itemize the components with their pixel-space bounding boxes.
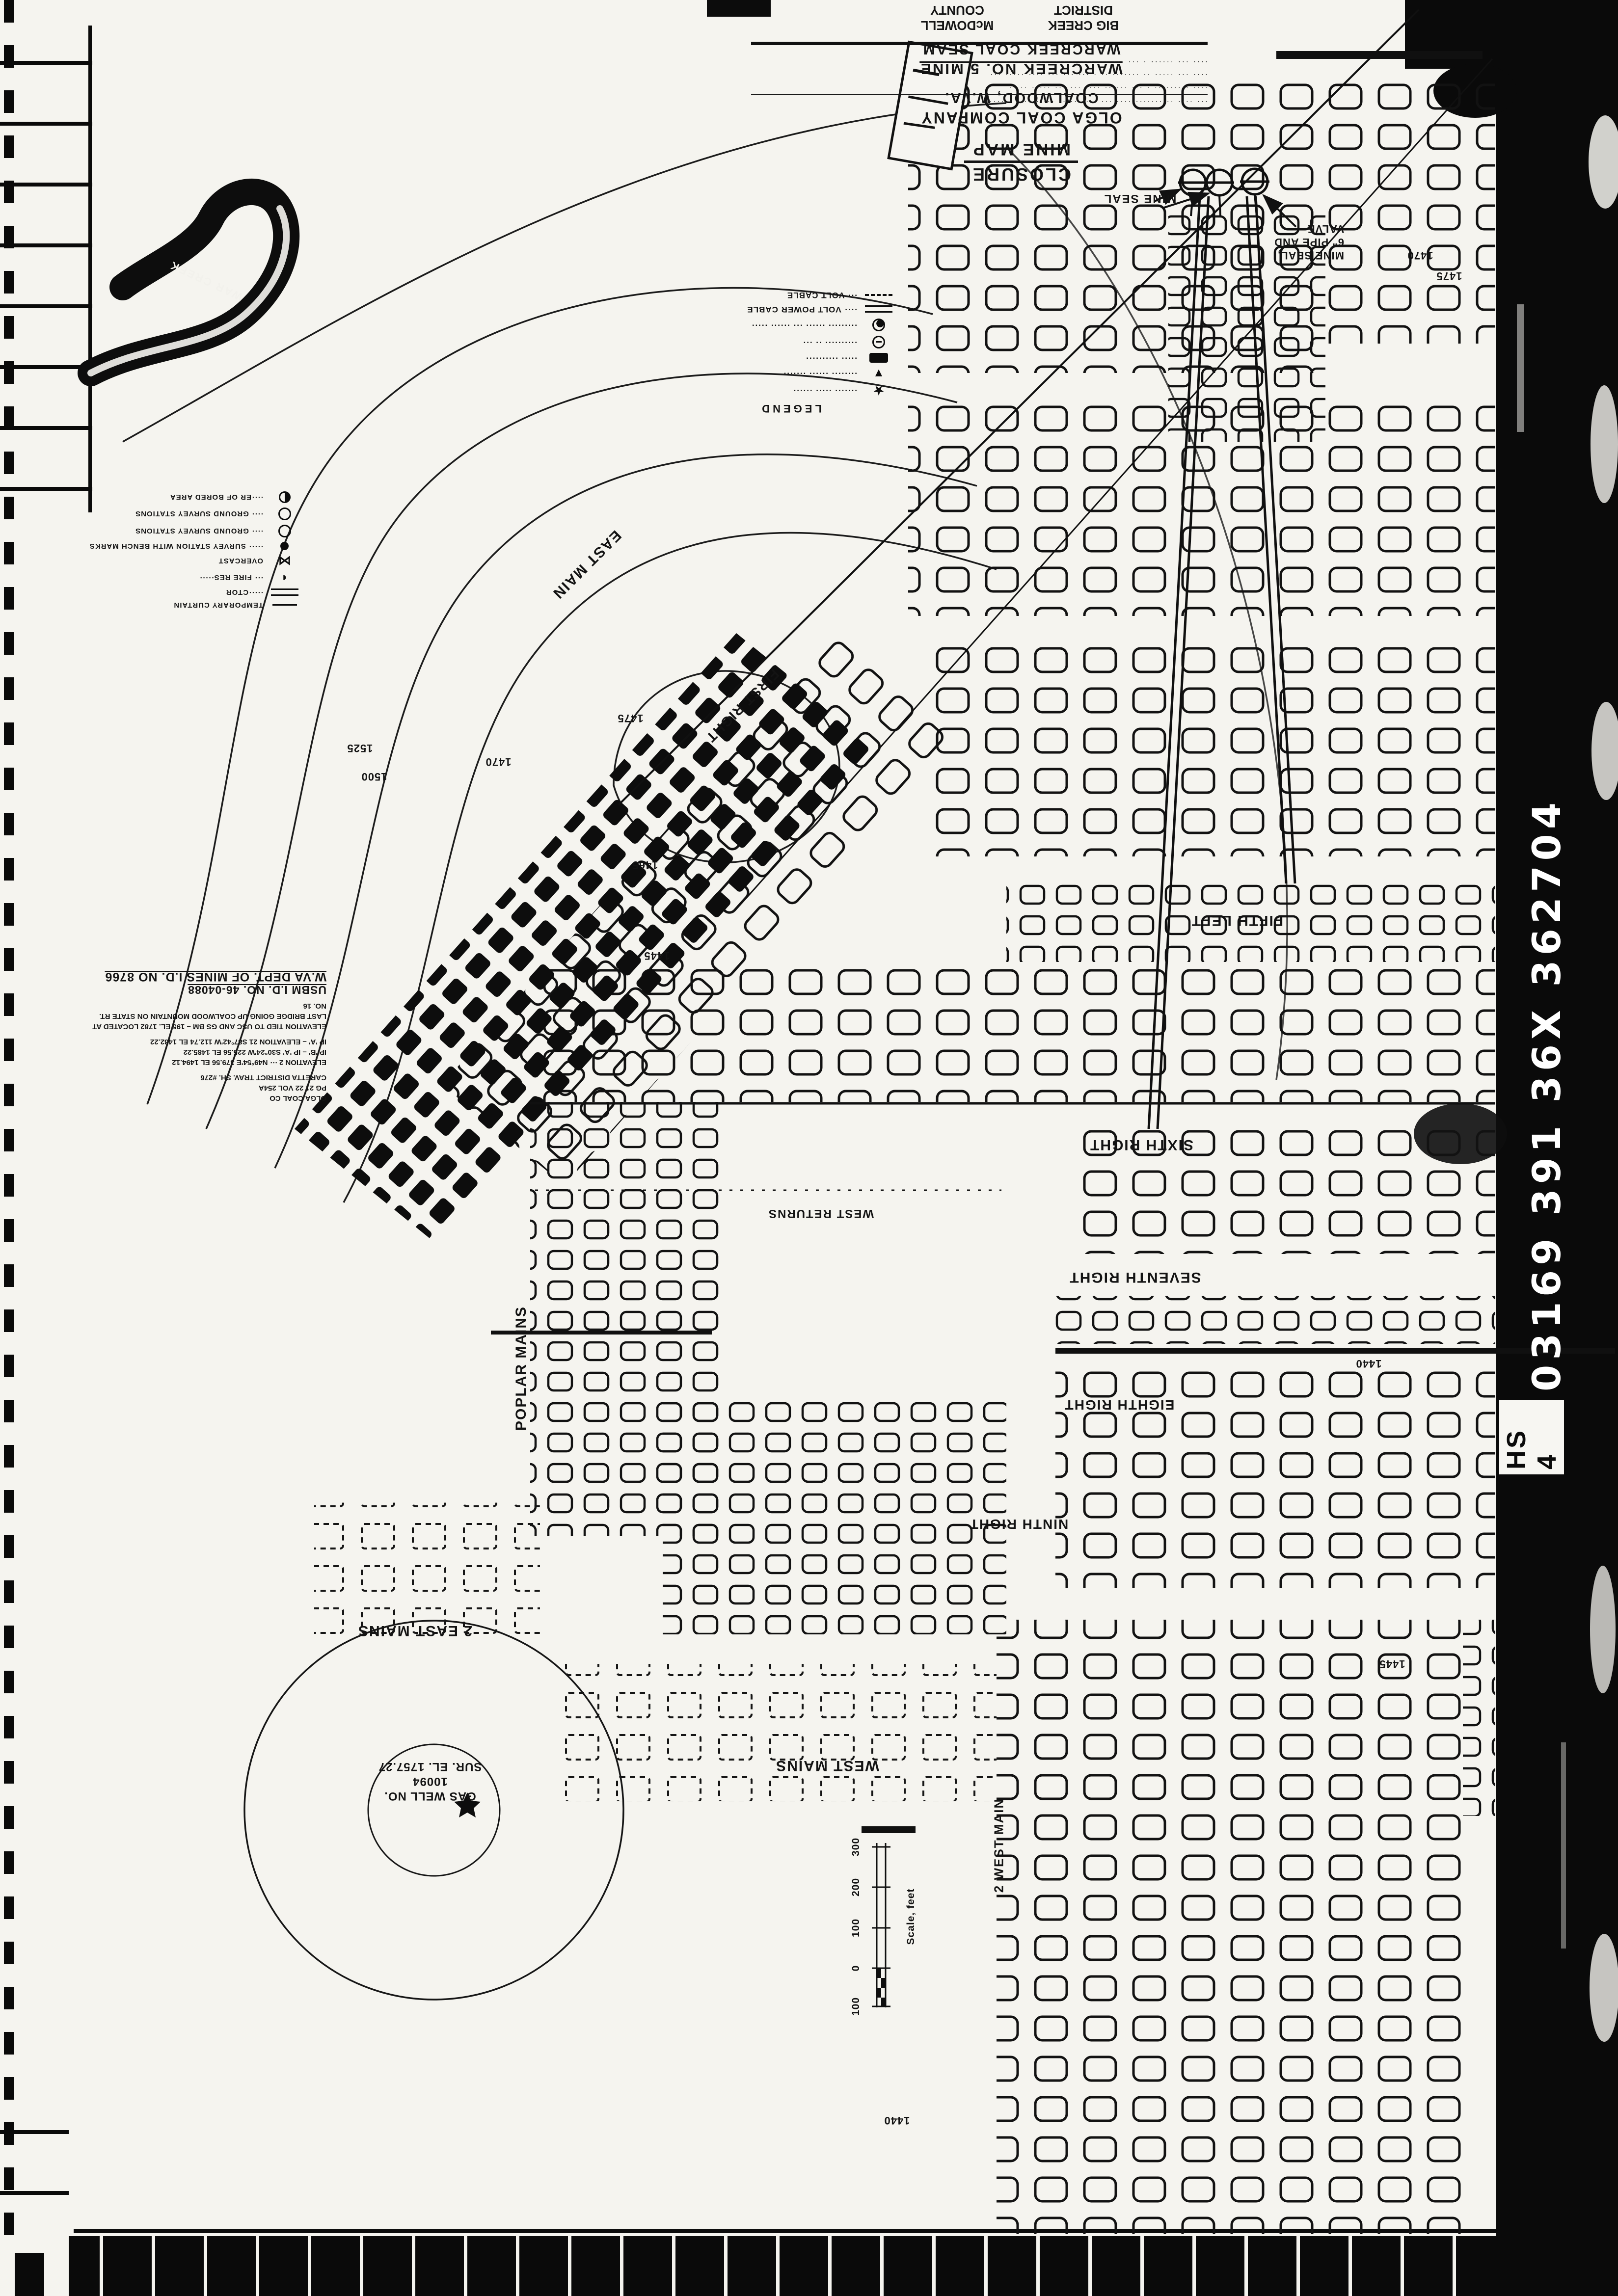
scale-tick-label: 100 — [850, 1919, 862, 1937]
contour-label: 1525 — [347, 742, 373, 754]
film-id-number: 03169 391 36X 362704 — [1525, 798, 1569, 1391]
legend-entry: ·····CTOR — [83, 588, 299, 596]
certification-block: ··· ···· ·· ······· ···· ··· ······· ·· … — [751, 42, 1208, 108]
survey-station-icon — [278, 525, 291, 537]
legend-entry: ··· VOLT CABLE — [687, 290, 893, 300]
contour-label: 1475 — [618, 712, 644, 724]
half-circle-icon — [270, 572, 299, 584]
street-label-ninth-right: NINTH RIGHT — [969, 1516, 1068, 1532]
street-label-west-mains: WEST MAINS — [775, 1757, 879, 1774]
reel-label: HS 4 — [1501, 1405, 1562, 1469]
scale-tick-label: 300 — [850, 1838, 862, 1856]
legend-entry: ········ ······ ······· — [687, 367, 893, 379]
mine-seal-note: MINE SEAL, 6" PIPE AND VALVE — [1251, 215, 1344, 262]
legend-entry: ···· VOLT POWER CABLE — [687, 304, 893, 314]
mine-workings — [295, 74, 1495, 2234]
seal-block-icon — [869, 353, 888, 363]
certification-line: ···· ········· · ··· ······ ···· ··· ···… — [751, 81, 1208, 94]
mine-id-block: OLGA COAL CO PG 21 22 VOL 254A CARETTA D… — [91, 996, 326, 1103]
legend-group-b: TEMPORARY CURTAIN ·····CTOR ··· FIRE RES… — [83, 466, 299, 614]
gas-well-elevation: SUR. EL. 1757.27 — [366, 1759, 494, 1774]
gas-well-label: GAS WELL NO. 10094 SUR. EL. 1757.27 — [366, 1771, 494, 1803]
contour-label: 1500 — [361, 770, 387, 783]
legend-entry: TEMPORARY CURTAIN — [83, 601, 299, 609]
scale-tick-label: 0 — [850, 1965, 862, 1972]
contour-label: 1465 — [632, 858, 658, 871]
film-bottom-band — [15, 2229, 1618, 2296]
street-label-seventh-right: SEVENTH RIGHT — [1069, 1269, 1201, 1285]
war-creek-band — [91, 192, 286, 373]
benchmark-station-icon — [281, 542, 289, 550]
traverse-line: IP 'A' – ELEVATION 21 S87°42'W 112.74 EL… — [91, 1037, 326, 1047]
usbm-id: USBM I.D. NO. 46-04088 — [91, 985, 326, 995]
legend-entry: ···· GROUND SURVEY STATIONS — [83, 525, 299, 537]
deflector-icon — [271, 588, 298, 596]
dial-circle-icon — [872, 336, 885, 348]
elevation-note: ELEVATION TIED TO USC AND GS BM – 195 EL… — [91, 1021, 326, 1032]
legend-entry: ····· SURVEY STATION WITH BENCH MARKS — [83, 542, 299, 550]
traverse-line: OLGA COAL CO — [91, 1093, 326, 1103]
bored-area-icon — [279, 491, 291, 503]
star-icon — [864, 383, 893, 397]
map-type-heading: CLOSURE — [964, 160, 1078, 185]
legend-entry: ········· ······ ··· ······ ····· — [687, 319, 893, 331]
traverse-line: PG 21 22 VOL 254A — [91, 1083, 326, 1093]
legend-entry: OVERCAST — [83, 555, 299, 567]
contour-label: 1445 — [1379, 1657, 1405, 1670]
traverse-line: ELEVATION 2 ··· N49°54'E 379.56 EL 1494.… — [91, 1057, 326, 1068]
film-top-blot — [707, 0, 771, 17]
scale-bar — [872, 1843, 890, 2007]
legend-entry: ···· GROUND SURVEY STATIONS — [83, 507, 299, 520]
elevation-note: LAST BRIDGE GOING UP COALWOOD MOUNTAIN O… — [91, 1001, 326, 1021]
legend-entry: ····ER OF BORED AREA — [83, 491, 299, 503]
scale-tick-label: 100 — [850, 1997, 862, 2016]
dashed-cable-icon — [865, 294, 892, 296]
contour-label: 1445 — [644, 949, 670, 962]
vane-circle-icon — [872, 319, 885, 331]
overcast-icon — [270, 555, 299, 567]
contour-label: 1475 — [1436, 269, 1462, 282]
street-label-fifth-left: FIFTH LEFT — [1191, 912, 1283, 929]
film-reel-tag: HS 4 — [1499, 1400, 1564, 1474]
legend-entry: ··· FIRE RES····· — [83, 572, 299, 584]
street-label-sixth-right: SIXTH RIGHT — [1089, 1136, 1193, 1153]
legend-entry: ····· ·········· — [687, 353, 893, 363]
legend-entry: ·········· ·· ··· — [687, 336, 893, 348]
contour-label: 1470 — [485, 755, 512, 768]
scale-tick-label: 200 — [850, 1878, 862, 1896]
street-label-west-returns: WEST RETURNS — [768, 1206, 874, 1220]
certification-line: ···· ··· ······ · ··· ··· ··· ···· ·····… — [751, 55, 1208, 68]
certification-line: ··· ···· ·· ······· ···· ··· ······· ·· … — [751, 94, 1208, 108]
district: BIG CREEK DISTRICT — [1020, 2, 1147, 33]
triangle-icon — [864, 367, 893, 379]
company-name: OLGA COAL COMPANY — [891, 108, 1151, 127]
power-cable-icon — [865, 306, 892, 313]
traverse-line: IP 'B' – IP 'A' S30°24'W 225.56 EL 1485.… — [91, 1047, 326, 1057]
legend-heading: LEGEND — [687, 402, 893, 415]
map-type-subheading: MINE MAP — [891, 139, 1151, 159]
scale-bar-caption: Scale, feet — [905, 1889, 917, 1945]
contour-label: 1470 — [1407, 249, 1433, 262]
county: McDOWELL COUNTY — [895, 2, 1020, 33]
legend-entry: ······· ····· ······ — [687, 383, 893, 397]
street-label-eighth-right: EIGHTH RIGHT — [1064, 1397, 1175, 1413]
street-label-two-west-main: 2 WEST MAIN — [992, 1798, 1007, 1893]
microfilm-scan-page: CLOSURE MINE MAP OLGA COAL COMPANY COALW… — [0, 0, 1618, 2296]
wv-dept-id: W.VA DEPT. OF MINES I.D. NO 8766 — [91, 971, 326, 982]
street-label-two-east-mains: 2 EAST MAINS — [357, 1622, 472, 1639]
contour-label: 1440 — [884, 2114, 910, 2127]
mine-seal-label: MINE SEAL — [1104, 191, 1177, 205]
survey-station-icon — [278, 507, 291, 520]
street-label-poplar-mains: POPLAR MAINS — [513, 1306, 530, 1431]
legend-group-a: LEGEND ······· ····· ······ ········ ···… — [687, 267, 893, 415]
contour-label: 1440 — [1356, 1357, 1382, 1370]
traverse-line: CARETTA DISTRICT TRAV. SH. #276 — [91, 1072, 326, 1083]
curtain-line-icon — [272, 604, 297, 606]
gas-well-name: GAS WELL NO. 10094 — [366, 1774, 494, 1803]
certification-line: ···· ··· ····· ·· ······· ·· · ··· ··· ·… — [751, 68, 1208, 81]
